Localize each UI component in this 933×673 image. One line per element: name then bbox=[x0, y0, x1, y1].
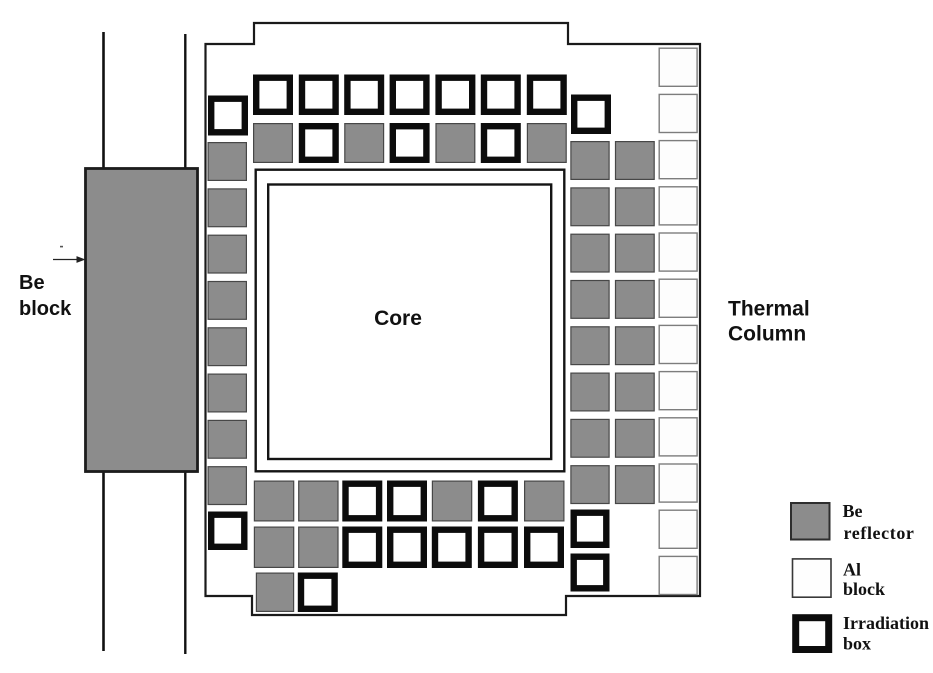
svg-text:box: box bbox=[843, 634, 871, 654]
svg-text:Al: Al bbox=[843, 560, 861, 580]
svg-text:reflector: reflector bbox=[844, 523, 915, 543]
svg-text:Be: Be bbox=[843, 501, 863, 521]
svg-text:Core: Core bbox=[374, 307, 422, 330]
svg-text:block: block bbox=[843, 579, 885, 599]
svg-text:Irradiation: Irradiation bbox=[843, 613, 929, 633]
svg-text:Be: Be bbox=[19, 272, 45, 294]
svg-text:Thermal: Thermal bbox=[728, 297, 810, 320]
svg-text:block: block bbox=[19, 298, 72, 320]
svg-text:Column: Column bbox=[728, 322, 806, 345]
